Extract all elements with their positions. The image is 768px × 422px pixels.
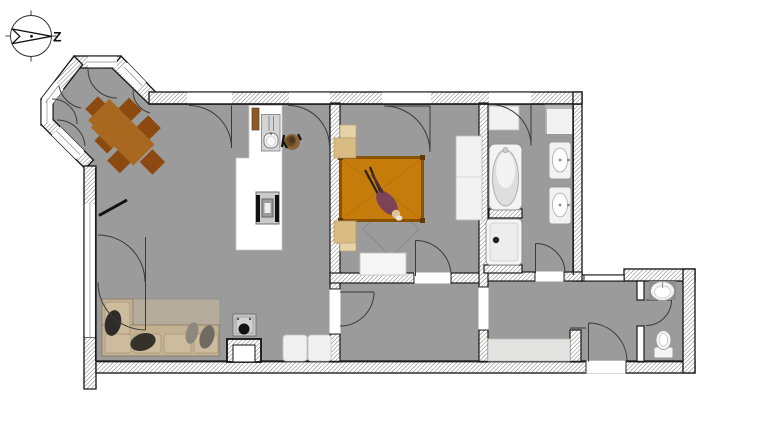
svg-text:Z: Z [53, 29, 62, 45]
